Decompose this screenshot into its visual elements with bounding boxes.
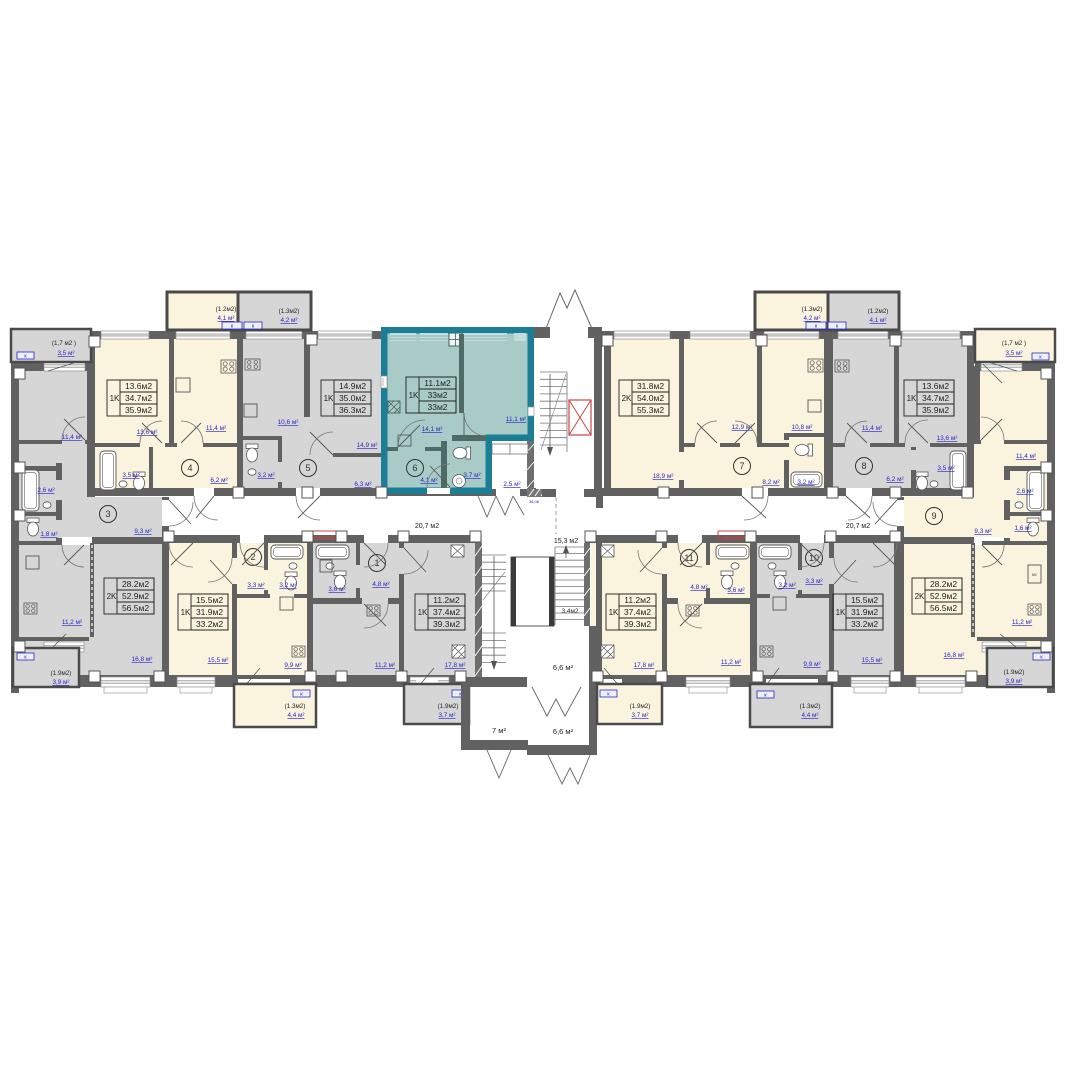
svg-text:37.4м2: 37.4м2	[624, 607, 651, 617]
svg-text:3,2 м²: 3,2 м²	[778, 582, 795, 589]
svg-text:(1.3м2): (1.3м2)	[279, 308, 300, 315]
svg-text:3,6 м²: 3,6 м²	[328, 586, 345, 593]
svg-text:9,3 м²: 9,3 м²	[974, 528, 991, 535]
svg-text:15.5м2: 15.5м2	[196, 595, 223, 605]
svg-text:16,8 м²: 16,8 м²	[132, 656, 153, 663]
svg-text:6,2 м²: 6,2 м²	[886, 476, 903, 483]
svg-text:3,9 м²: 3,9 м²	[1006, 678, 1023, 685]
svg-text:(1,7 м2 ): (1,7 м2 )	[52, 340, 76, 347]
svg-text:17,8 м²: 17,8 м²	[634, 662, 655, 669]
svg-text:9,9 м²: 9,9 м²	[284, 662, 301, 669]
svg-text:4,8 м²: 4,8 м²	[372, 581, 389, 588]
svg-text:3,2 м²: 3,2 м²	[797, 479, 814, 486]
svg-text:11,2 м²: 11,2 м²	[62, 619, 82, 626]
svg-text:10,8 м²: 10,8 м²	[792, 424, 813, 431]
svg-text:(1.3м2): (1.3м2)	[802, 306, 823, 313]
svg-text:11.2м2: 11.2м2	[433, 595, 460, 605]
svg-text:(1.3м2): (1.3м2)	[800, 703, 821, 710]
svg-text:4,4 м²: 4,4 м²	[288, 712, 305, 719]
svg-text:3,2 м²: 3,2 м²	[279, 582, 296, 589]
svg-text:4,2 м²: 4,2 м²	[804, 315, 821, 322]
svg-text:1K: 1K	[181, 608, 191, 617]
svg-text:2K: 2K	[622, 394, 632, 403]
svg-text:13,6 м²: 13,6 м²	[937, 435, 958, 442]
svg-text:3,7 м²: 3,7 м²	[439, 712, 456, 719]
svg-text:4,1 м²: 4,1 м²	[218, 315, 235, 322]
svg-text:15,3 м2: 15,3 м2	[554, 538, 578, 545]
svg-text:3,3 м²: 3,3 м²	[805, 578, 822, 585]
svg-text:37.4м2: 37.4м2	[433, 607, 460, 617]
svg-text:31.9м2: 31.9м2	[851, 607, 878, 617]
svg-text:7: 7	[739, 461, 744, 471]
svg-text:1K: 1K	[324, 394, 334, 403]
svg-text:12,9 м²: 12,9 м²	[732, 424, 753, 431]
svg-text:13.6м2: 13.6м2	[922, 381, 949, 391]
svg-text:3,5 м²: 3,5 м²	[122, 472, 139, 479]
svg-text:4,2 м²: 4,2 м²	[281, 317, 298, 324]
svg-text:13.6м2: 13.6м2	[125, 381, 152, 391]
svg-text:2,5 м²: 2,5 м²	[503, 481, 520, 488]
svg-text:52.9м2: 52.9м2	[122, 591, 149, 601]
svg-text:3,4м2: 3,4м2	[561, 608, 579, 615]
svg-text:(1.3м2): (1.3м2)	[285, 703, 306, 710]
svg-text:17,8 м²: 17,8 м²	[445, 662, 466, 669]
svg-text:54.0м2: 54.0м2	[637, 393, 664, 403]
svg-text:11,1 м²: 11,1 м²	[506, 416, 526, 423]
svg-text:3,5 м²: 3,5 м²	[937, 465, 954, 472]
svg-text:11,4 м²: 11,4 м²	[862, 425, 882, 432]
svg-text:(1.2м2): (1.2м2)	[868, 308, 889, 315]
svg-text:6,6 м²: 6,6 м²	[553, 663, 574, 672]
svg-text:3,2 м²: 3,2 м²	[257, 472, 274, 479]
svg-text:20,7 м2: 20,7 м2	[846, 523, 870, 530]
svg-text:3,3 м²: 3,3 м²	[247, 582, 264, 589]
svg-text:3,7 м²: 3,7 м²	[463, 472, 480, 479]
svg-text:11,2 м²: 11,2 м²	[375, 662, 395, 669]
svg-text:1K: 1K	[110, 394, 120, 403]
svg-text:16,8 м²: 16,8 м²	[944, 652, 965, 659]
svg-text:2,6 м²: 2,6 м²	[1016, 488, 1033, 495]
svg-text:15.5м2: 15.5м2	[851, 595, 878, 605]
svg-text:39.3м2: 39.3м2	[433, 619, 460, 629]
svg-text:20,7 м2: 20,7 м2	[415, 523, 439, 530]
svg-text:9,3 м²: 9,3 м²	[134, 528, 151, 535]
svg-text:33м2: 33м2	[427, 402, 447, 412]
svg-text:2,6 м²: 2,6 м²	[37, 487, 54, 494]
svg-text:35.9м2: 35.9м2	[922, 405, 949, 415]
svg-text:15,5 м²: 15,5 м²	[862, 657, 883, 664]
svg-text:3,6 м²: 3,6 м²	[727, 587, 744, 594]
svg-text:11: 11	[684, 553, 693, 563]
svg-text:6,2 м²: 6,2 м²	[210, 477, 227, 484]
svg-text:35.9м2: 35.9м2	[125, 405, 152, 415]
svg-text:5: 5	[305, 463, 310, 473]
svg-text:4,8 м²: 4,8 м²	[690, 584, 707, 591]
svg-text:3,7 м²: 3,7 м²	[632, 712, 649, 719]
svg-text:11,4 м²: 11,4 м²	[62, 434, 82, 441]
svg-text:18,9 м²: 18,9 м²	[653, 473, 674, 480]
svg-text:(1,7 м2 ): (1,7 м2 )	[1002, 340, 1026, 347]
svg-text:28.2м2: 28.2м2	[122, 579, 149, 589]
svg-text:3,9 м²: 3,9 м²	[53, 679, 70, 686]
svg-text:1K: 1K	[409, 391, 419, 400]
svg-text:36,06: 36,06	[529, 499, 540, 504]
svg-text:мс: мс	[1032, 572, 1038, 577]
svg-text:(1.9м2): (1.9м2)	[630, 703, 651, 710]
svg-text:14.9м2: 14.9м2	[339, 381, 366, 391]
svg-text:33.2м2: 33.2м2	[851, 619, 878, 629]
svg-text:(1.9м2): (1.9м2)	[438, 703, 459, 710]
svg-text:9: 9	[931, 511, 936, 521]
svg-text:15,5 м²: 15,5 м²	[208, 657, 229, 664]
svg-text:6,6 м²: 6,6 м²	[553, 727, 574, 736]
svg-text:3,5 м²: 3,5 м²	[58, 350, 75, 357]
svg-text:34.7м2: 34.7м2	[922, 393, 949, 403]
svg-text:6: 6	[412, 463, 417, 473]
svg-text:10: 10	[809, 553, 819, 563]
svg-text:34.7м2: 34.7м2	[125, 393, 152, 403]
svg-text:(1.9м2): (1.9м2)	[1004, 669, 1025, 676]
svg-text:31.9м2: 31.9м2	[196, 607, 223, 617]
svg-text:11,4 м²: 11,4 м²	[206, 425, 226, 432]
svg-text:1,8 м²: 1,8 м²	[40, 531, 57, 538]
svg-text:33.2м2: 33.2м2	[196, 619, 223, 629]
svg-text:14,9 м²: 14,9 м²	[357, 442, 378, 449]
svg-text:11,4 м²: 11,4 м²	[1016, 453, 1036, 460]
svg-text:56.5м2: 56.5м2	[122, 603, 149, 613]
svg-text:2K: 2K	[107, 592, 117, 601]
svg-text:39.3м2: 39.3м2	[624, 619, 651, 629]
svg-text:10,6 м²: 10,6 м²	[278, 419, 299, 426]
svg-text:11.1м2: 11.1м2	[424, 378, 451, 388]
svg-text:11.2м2: 11.2м2	[624, 595, 651, 605]
svg-text:(1.9м2): (1.9м2)	[51, 670, 72, 677]
svg-text:9,9 м²: 9,9 м²	[803, 661, 820, 668]
svg-text:4,1 м²: 4,1 м²	[870, 317, 887, 324]
svg-text:14,1 м²: 14,1 м²	[422, 426, 443, 433]
svg-text:8: 8	[861, 461, 866, 471]
svg-text:31.8м2: 31.8м2	[637, 381, 664, 391]
svg-text:1K: 1K	[907, 394, 917, 403]
svg-text:1K: 1K	[836, 608, 846, 617]
svg-text:1K: 1K	[609, 608, 619, 617]
svg-text:4: 4	[187, 463, 192, 473]
svg-text:33м2: 33м2	[427, 390, 447, 400]
svg-text:56.5м2: 56.5м2	[930, 603, 957, 613]
svg-text:11,2 м²: 11,2 м²	[721, 659, 741, 666]
svg-text:4,4 м²: 4,4 м²	[802, 712, 819, 719]
svg-text:36.3м2: 36.3м2	[339, 405, 366, 415]
svg-text:3: 3	[105, 509, 110, 519]
svg-text:3,5 м²: 3,5 м²	[1006, 350, 1023, 357]
svg-text:8,2 м²: 8,2 м²	[762, 479, 779, 486]
svg-text:35.0м2: 35.0м2	[339, 393, 366, 403]
svg-text:7 м²: 7 м²	[492, 726, 506, 735]
svg-text:28.2м2: 28.2м2	[930, 579, 957, 589]
svg-text:52.9м2: 52.9м2	[930, 591, 957, 601]
svg-text:1K: 1K	[418, 608, 428, 617]
svg-text:(1.2м2): (1.2м2)	[216, 306, 237, 313]
svg-text:11,2 м²: 11,2 м²	[1012, 619, 1032, 626]
svg-text:55.3м2: 55.3м2	[637, 405, 664, 415]
svg-text:1,6 м²: 1,6 м²	[1014, 525, 1031, 532]
svg-text:6,3 м²: 6,3 м²	[354, 481, 371, 488]
svg-text:2K: 2K	[915, 592, 925, 601]
